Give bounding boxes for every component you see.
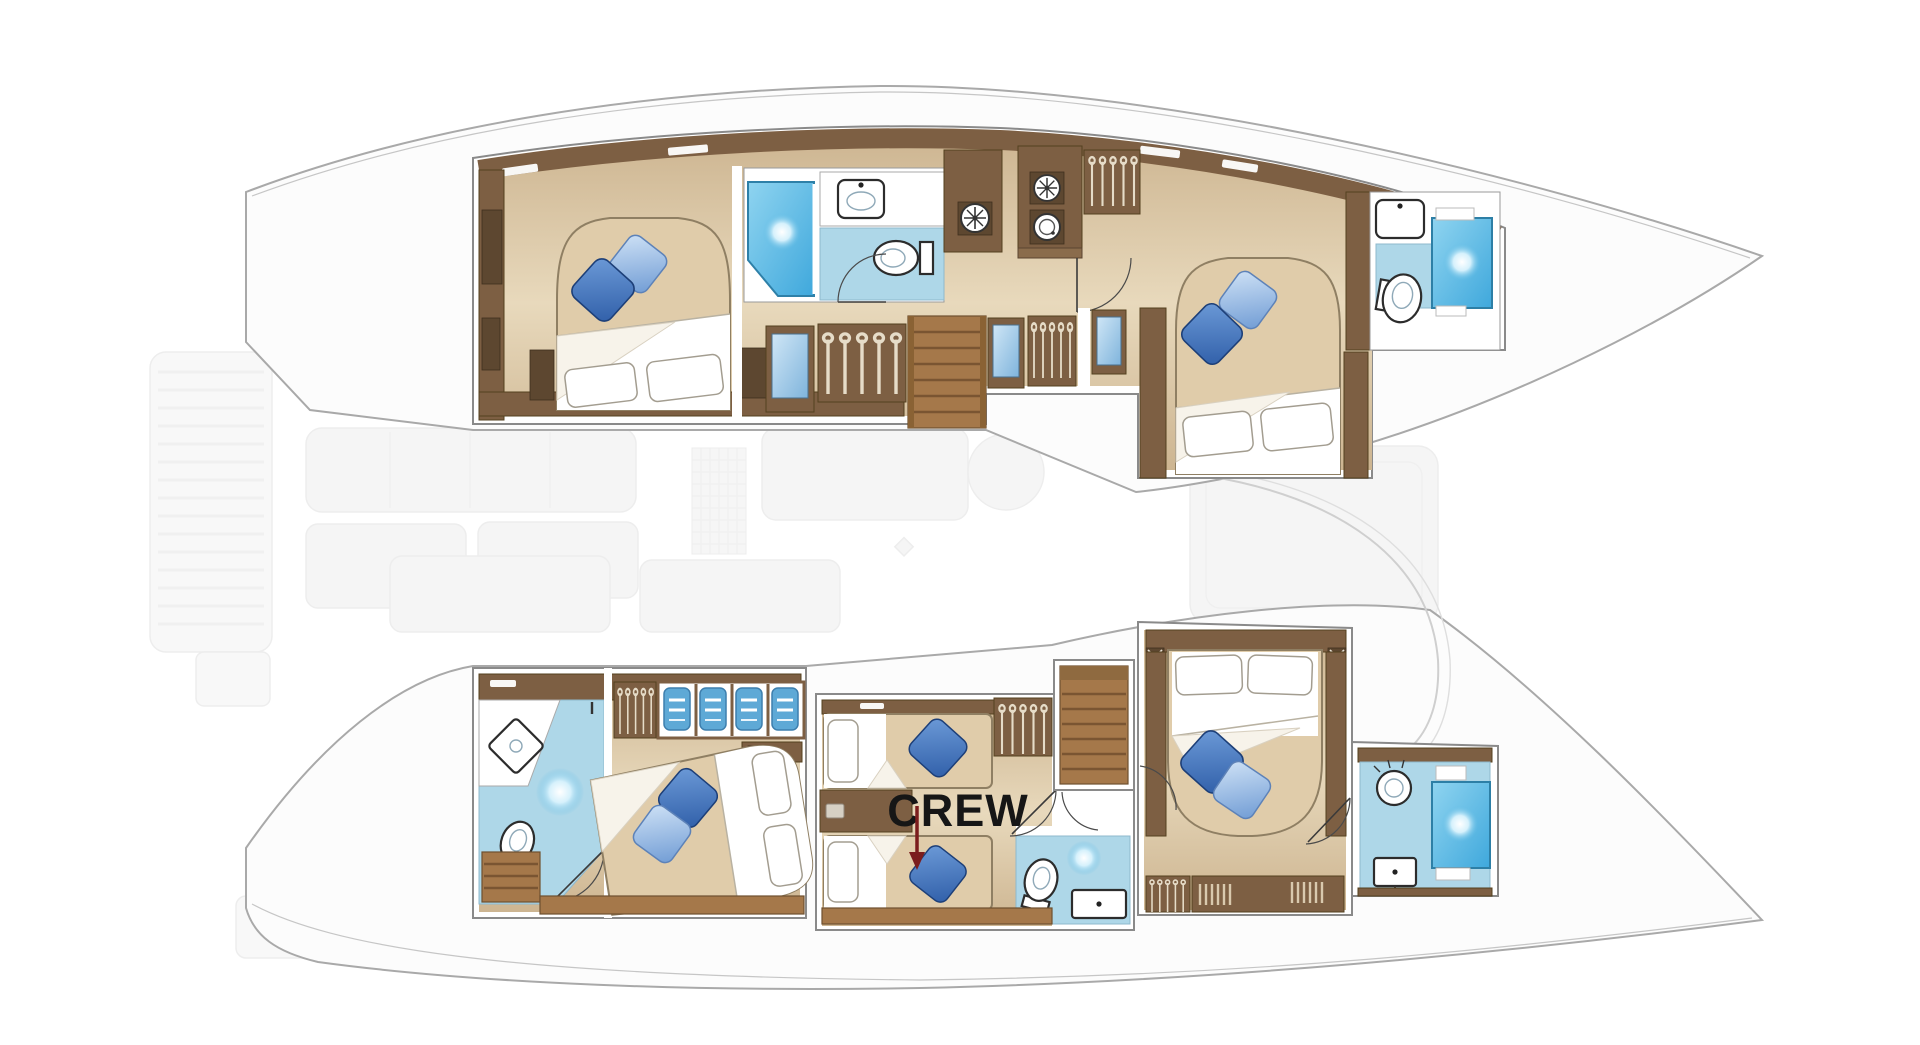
shower-icon xyxy=(1067,841,1102,876)
wardrobe-icon xyxy=(994,698,1052,756)
floorplan-svg: CREW xyxy=(0,0,1920,1045)
double-bed-starboard-forward xyxy=(1168,650,1322,836)
double-bed-port-aft xyxy=(557,218,730,410)
hatch-steps-icon xyxy=(482,852,540,902)
crew-bed-upper xyxy=(824,714,992,788)
double-bed-port-forward xyxy=(1176,258,1340,474)
catamaran-floorplan: CREW xyxy=(0,0,1920,1045)
bookshelf xyxy=(1192,876,1344,912)
shower-icon xyxy=(1432,208,1492,316)
sink-icon xyxy=(1072,890,1126,918)
vent-fan-icon xyxy=(1034,175,1060,201)
towel-shelf xyxy=(658,682,804,738)
starboard-forward-cabin-block xyxy=(1138,622,1352,915)
sink-icon xyxy=(1376,200,1424,238)
wardrobe-icon xyxy=(614,682,656,738)
wardrobe-icon xyxy=(1146,876,1190,912)
crew-label: CREW xyxy=(887,785,1028,836)
stairs-icon xyxy=(908,316,986,428)
crew-bed-lower xyxy=(824,836,992,910)
toilet-icon xyxy=(874,241,933,275)
washer-icon xyxy=(1034,214,1060,240)
shower-icon xyxy=(536,768,584,816)
ghost-grid-table xyxy=(692,448,746,554)
wardrobe-icon xyxy=(1084,150,1140,214)
companionway-stairs-starboard xyxy=(1054,660,1134,790)
starboard-aft-block xyxy=(473,668,817,923)
starboard-forward-bathroom-block xyxy=(1352,742,1498,896)
port-forward-bathroom xyxy=(1346,192,1500,350)
shower-icon xyxy=(1432,766,1490,880)
vent-fan-icon xyxy=(961,204,989,232)
sink-icon xyxy=(838,180,884,218)
